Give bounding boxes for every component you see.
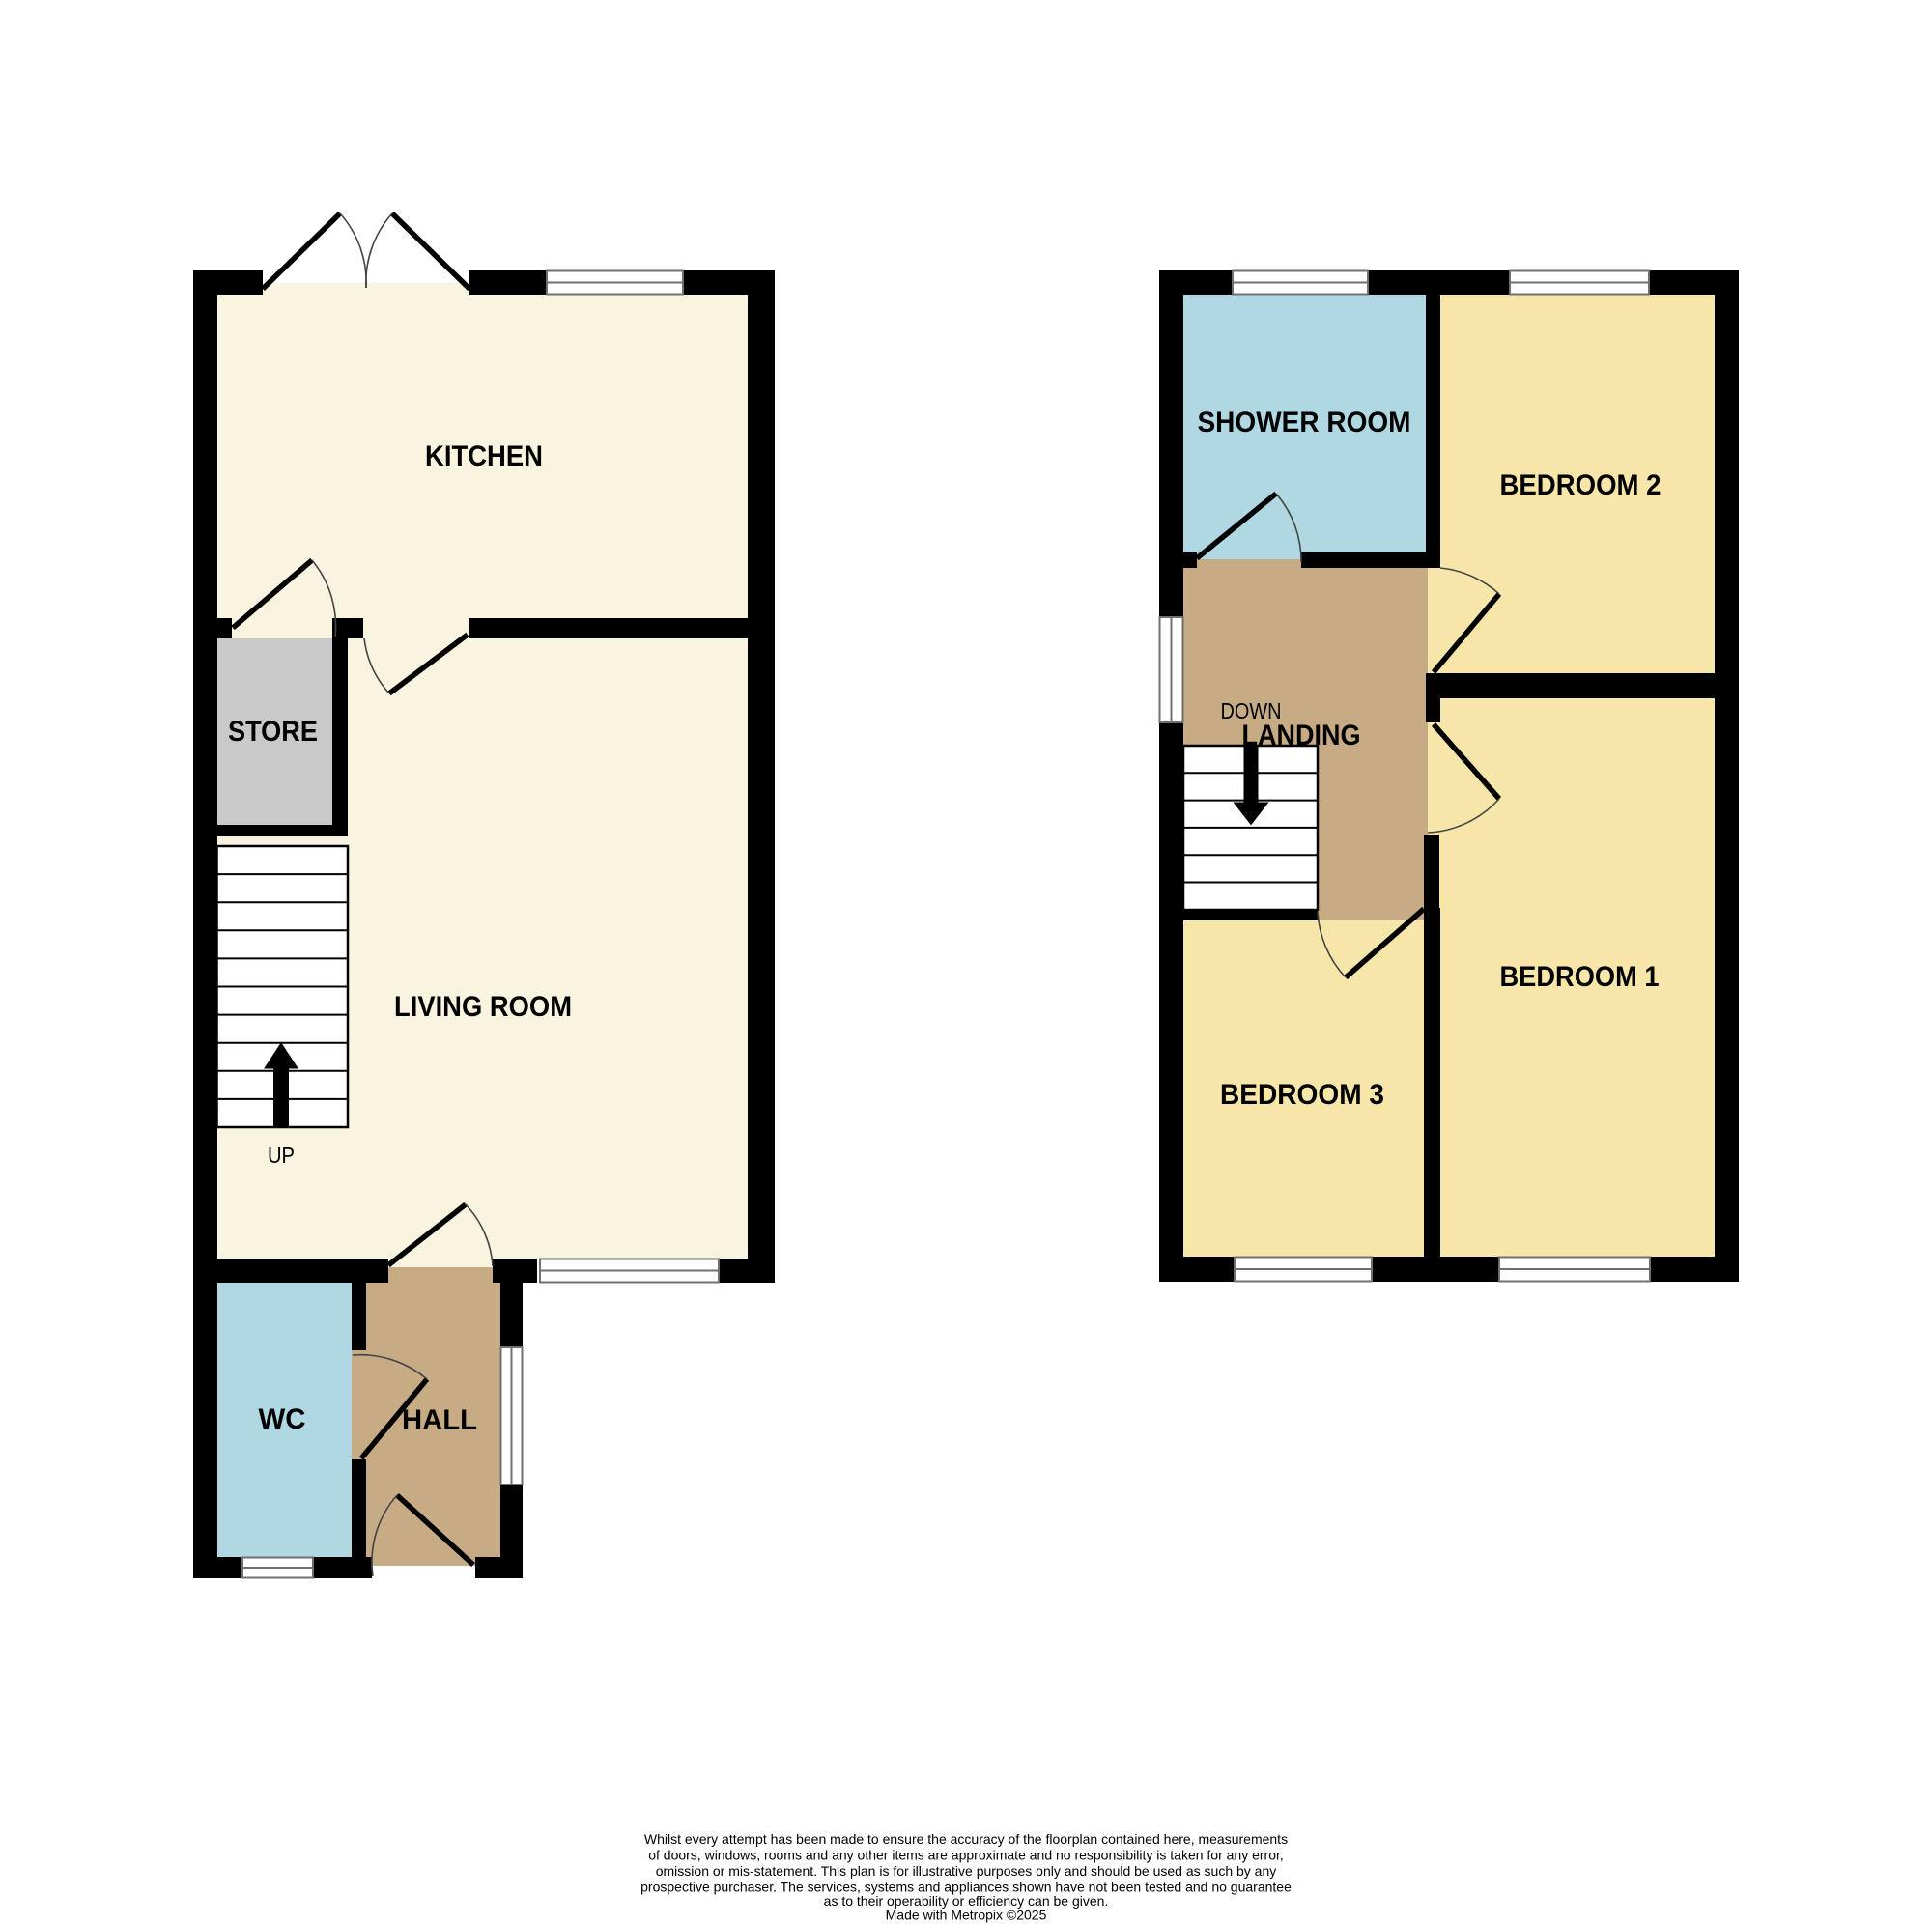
svg-text:SHOWER ROOM: SHOWER ROOM (1198, 407, 1411, 439)
svg-text:LANDING: LANDING (1242, 720, 1361, 751)
svg-text:Whilst every attempt has been: Whilst every attempt has been made to en… (644, 1831, 1288, 1847)
svg-text:BEDROOM 1: BEDROOM 1 (1500, 961, 1660, 993)
svg-text:HALL: HALL (402, 1404, 477, 1436)
svg-text:STORE: STORE (228, 716, 318, 748)
svg-text:UP: UP (268, 1143, 295, 1168)
svg-text:LIVING ROOM: LIVING ROOM (394, 991, 572, 1023)
svg-text:omission or mis-statement. Thi: omission or mis-statement. This plan is … (656, 1863, 1277, 1879)
svg-text:WC: WC (259, 1403, 306, 1435)
svg-text:Made with Metropix ©2025: Made with Metropix ©2025 (886, 1908, 1047, 1923)
svg-text:of doors, windows, rooms and a: of doors, windows, rooms and any other i… (648, 1848, 1284, 1863)
svg-text:BEDROOM 2: BEDROOM 2 (1500, 469, 1662, 501)
svg-text:BEDROOM 3: BEDROOM 3 (1220, 1079, 1384, 1111)
svg-text:KITCHEN: KITCHEN (425, 440, 543, 472)
